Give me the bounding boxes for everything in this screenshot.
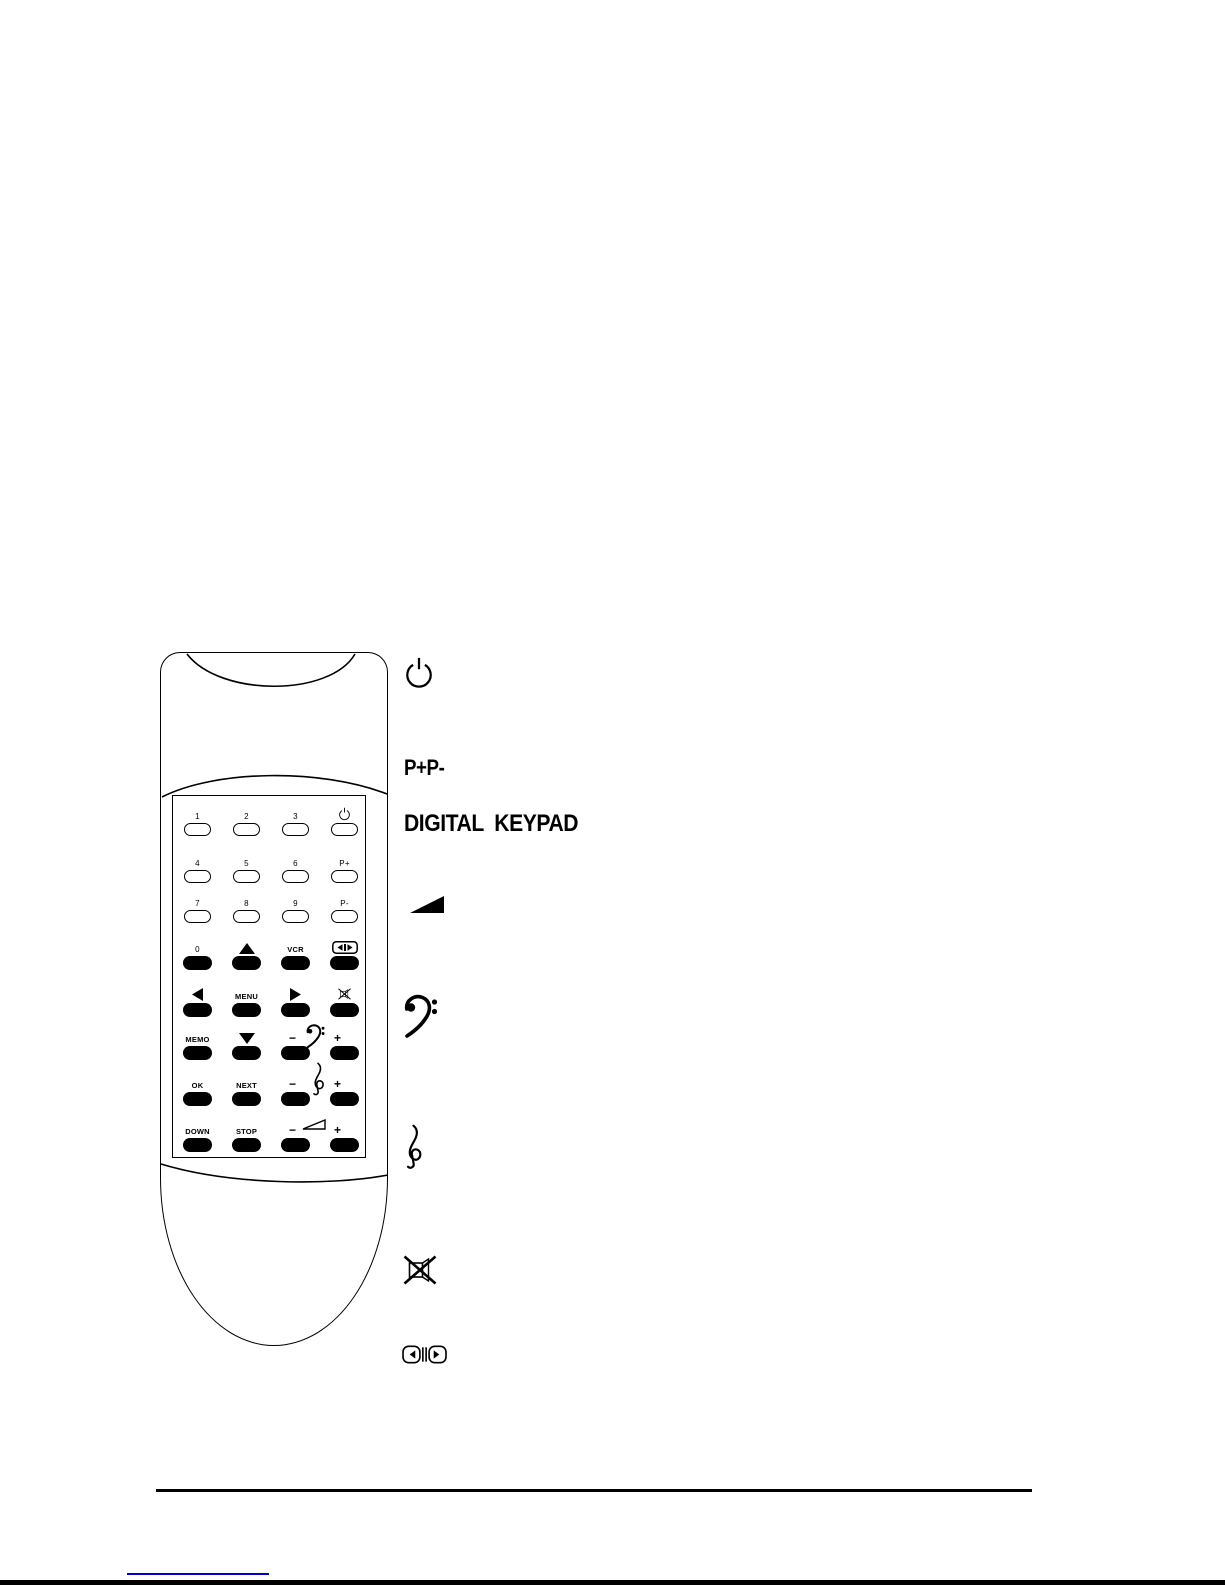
key-label: 1	[195, 805, 200, 821]
key-label: OK	[192, 1074, 204, 1090]
volume-icon	[302, 1119, 326, 1130]
bass-clef-icon	[402, 993, 438, 1039]
treble-clef-icon	[311, 1058, 325, 1098]
key-label: 6	[293, 852, 298, 868]
key-cap	[232, 1003, 261, 1017]
key-cap	[330, 1138, 359, 1152]
remote-key-next: NEXT	[222, 1070, 271, 1106]
remote-key-left	[173, 981, 222, 1017]
key-cap	[232, 1046, 261, 1060]
key-cap	[183, 1092, 212, 1106]
power-icon	[404, 656, 434, 690]
key-label: MENU	[235, 985, 258, 1001]
key-cap	[183, 1003, 212, 1017]
key-cap	[232, 1138, 261, 1152]
key-label: NEXT	[236, 1074, 257, 1090]
key-label: 4	[195, 852, 200, 868]
key-label: P-	[340, 892, 349, 908]
remote-key-ok: OK	[173, 1070, 222, 1106]
arrow-down-icon	[239, 1028, 255, 1044]
page-bottom-border	[0, 1580, 1225, 1585]
key-label: VCR	[287, 938, 303, 954]
key-cap	[330, 1092, 359, 1106]
key-label: 2	[244, 805, 249, 821]
remote-key-up	[222, 934, 271, 970]
key-cap	[331, 910, 358, 923]
key-cap	[330, 956, 359, 970]
arrow-up-icon	[239, 938, 255, 954]
remote-key-treble-plus: +	[320, 1070, 369, 1106]
key-label: 0	[195, 938, 200, 954]
footer-link-underline[interactable]	[127, 1573, 269, 1575]
key-cap	[282, 910, 309, 923]
remote-key-power	[320, 800, 369, 836]
key-label: +	[334, 1120, 341, 1136]
treble-clef-icon	[404, 1121, 423, 1170]
key-cap	[331, 870, 358, 883]
key-cap	[183, 1138, 212, 1152]
key-label: 9	[293, 892, 298, 908]
key-cap	[331, 823, 358, 836]
remote-key-0: 0	[173, 934, 222, 970]
power-icon	[338, 805, 351, 821]
remote-key-4: 4	[173, 847, 222, 883]
key-label: 8	[244, 892, 249, 908]
key-cap	[183, 956, 212, 970]
remote-key-5: 5	[222, 847, 271, 883]
remote-key-6: 6	[271, 847, 320, 883]
key-label: +	[334, 1028, 341, 1044]
remote-key-right	[271, 981, 320, 1017]
key-cap	[232, 1092, 261, 1106]
key-label: 7	[195, 892, 200, 908]
key-cap	[281, 1138, 310, 1152]
remote-key-volume-plus: +	[320, 1116, 369, 1152]
bass-clef-icon	[305, 1022, 325, 1050]
remote-key-p-plus: P+	[320, 847, 369, 883]
key-label: P+	[339, 852, 350, 868]
arrow-right-icon	[290, 985, 301, 1001]
key-cap	[233, 910, 260, 923]
remote-key-bass-plus: +	[320, 1024, 369, 1060]
remote-key-7: 7	[173, 887, 222, 923]
key-label: +	[334, 1074, 341, 1090]
key-cap	[184, 823, 211, 836]
remote-key-down: DOWN	[173, 1116, 222, 1152]
remote-key-memo: MEMO	[173, 1024, 222, 1060]
arrow-left-icon	[192, 985, 203, 1001]
volume-icon	[410, 896, 444, 913]
remote-key-3: 3	[271, 800, 320, 836]
key-cap	[281, 956, 310, 970]
key-cap	[232, 956, 261, 970]
remote-key-1: 1	[173, 800, 222, 836]
key-cap	[184, 870, 211, 883]
key-label: 3	[293, 805, 298, 821]
remote-key-2: 2	[222, 800, 271, 836]
remote-key-stop: STOP	[222, 1116, 271, 1152]
remote-key-mute	[320, 981, 369, 1017]
mute-icon	[402, 1252, 438, 1288]
remote-key-down-arrow	[222, 1024, 271, 1060]
key-cap	[281, 1092, 310, 1106]
key-cap	[233, 823, 260, 836]
remote-key-9: 9	[271, 887, 320, 923]
key-label: −	[289, 1074, 296, 1090]
footer-rule	[156, 1489, 1032, 1492]
key-label: MEMO	[185, 1028, 209, 1044]
key-label: STOP	[236, 1120, 257, 1136]
key-cap	[282, 823, 309, 836]
remote-key-vcr: VCR	[271, 934, 320, 970]
key-label: 5	[244, 852, 249, 868]
key-cap	[281, 1003, 310, 1017]
remote-key-av-swap	[320, 934, 369, 970]
mute-icon	[337, 985, 352, 1001]
key-label: DOWN	[185, 1120, 210, 1136]
key-cap	[184, 910, 211, 923]
remote-key-p-minus: P-	[320, 887, 369, 923]
remote-key-8: 8	[222, 887, 271, 923]
key-cap	[330, 1003, 359, 1017]
key-cap	[330, 1046, 359, 1060]
av-swap-icon	[402, 1344, 447, 1365]
legend-p-plus-minus: P+P-	[404, 755, 444, 781]
key-label: −	[289, 1120, 296, 1136]
remote-key-menu: MENU	[222, 981, 271, 1017]
manual-page: 1 2 3 4 5 6 P+ 7 8 9 P-	[0, 0, 1225, 1585]
key-cap	[282, 870, 309, 883]
av-swap-icon	[332, 938, 358, 954]
key-cap	[183, 1046, 212, 1060]
key-cap	[233, 870, 260, 883]
legend-digital-keypad: DIGITAL KEYPAD	[404, 810, 578, 838]
key-label: −	[289, 1028, 296, 1044]
